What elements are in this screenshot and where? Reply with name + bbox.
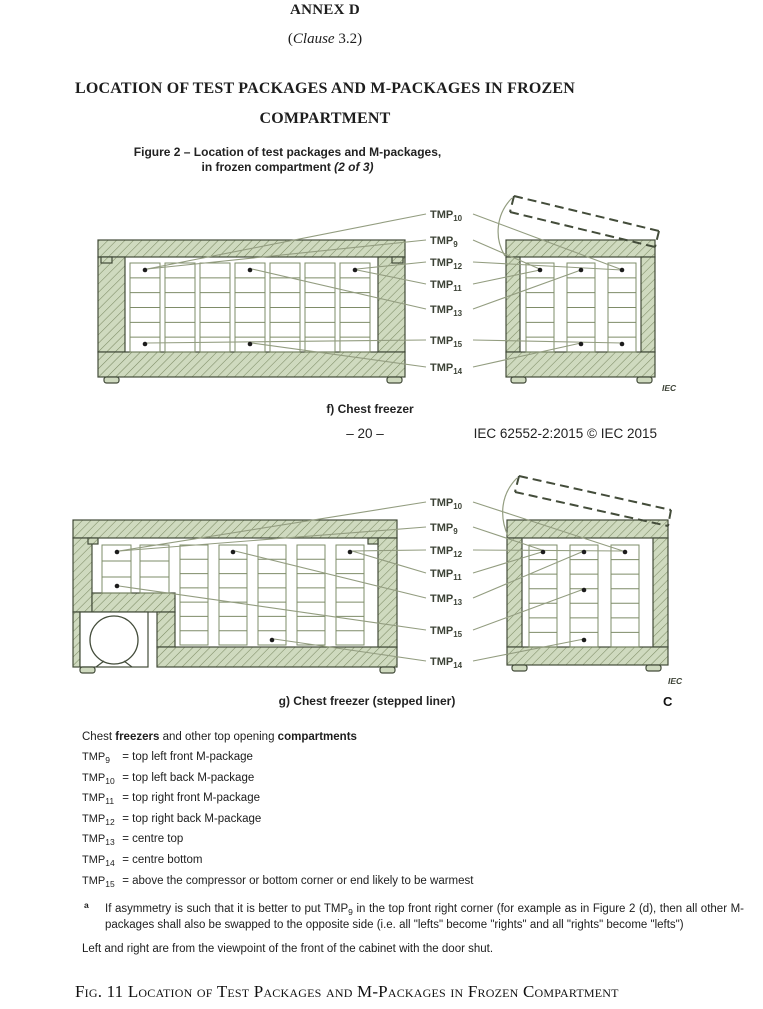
tmp-legend: Chest freezers and other top opening com… [82,731,744,955]
figure-11-caption: Fig. 11 Location of Test Packages and M-… [75,982,735,1002]
tmp-label-12: TMP12 [430,545,463,559]
legend-item-tmp-13: TMP13= centre top [82,833,744,854]
clause-word: Clause [293,31,335,47]
tmp-description: = centre bottom [122,854,202,866]
legend-heading: Chest freezers and other top opening com… [82,731,744,743]
tmp-subscript: 9 [105,755,120,765]
tmp-description: = top right front M-package [122,792,260,804]
tmp-label-9: TMP9 [430,235,458,249]
subfigure-f-caption: f) Chest freezer [240,402,500,416]
tmp-label-9: TMP9 [430,522,458,536]
legend-heading-part: Chest [82,731,115,743]
tmp-label-15: TMP15 [430,625,463,639]
tmp-description: = above the compressor or bottom corner … [122,875,473,887]
legend-item-tmp-11: TMP11= top right front M-package [82,792,744,813]
tmp-label-12: TMP12 [430,257,463,271]
clause-suffix: 3.2) [335,31,363,47]
page-title-line2: COMPARTMENT [0,104,650,134]
iec-mark: IEC [668,676,683,686]
legend-item-tmp-14: TMP14= centre bottom [82,854,744,875]
figure2-caption: Figure 2 – Location of test packages and… [60,145,515,175]
page-number: – 20 – [320,426,410,441]
figure2-caption-line2-italic: (2 of 3) [334,160,373,174]
legend-item-tmp-9: TMP9= top left front M-package [82,751,744,772]
document-reference: IEC 62552-2:2015 © IEC 2015 [474,426,657,441]
footnote-tmp-subscript: 9 [348,907,353,917]
figure2-caption-line2: in frozen compartment (2 of 3) [60,160,515,175]
compressor-icon [90,616,138,664]
legend-items: TMP9= top left front M-packageTMP10= top… [82,751,744,895]
tmp-name: TMP [82,792,105,804]
tmp-description: = centre top [122,833,183,845]
tmp-subscript: 12 [105,817,120,827]
tmp-subscript: 13 [105,837,120,847]
footnote-text: If asymmetry is such that it is better t… [105,902,744,933]
tmp-label-10: TMP10 [430,209,463,223]
viewpoint-note: Left and right are from the viewpoint of… [82,943,744,955]
tmp-subscript: 14 [105,858,120,868]
iec-mark: IEC [662,383,677,393]
test-package-grid [102,545,639,647]
tmp-subscript: 11 [105,796,120,806]
cabinet-feet [104,377,652,383]
tmp-description: = top left front M-package [122,751,253,763]
tmp-name: TMP [82,875,105,887]
tmp-name: TMP [82,833,105,845]
tmp-label-13: TMP13 [430,304,463,318]
tmp-label-13: TMP13 [430,593,463,607]
legend-heading-part: freezers [115,731,159,743]
footnote-marker: a [84,900,89,910]
tmp-label-14: TMP14 [430,656,463,670]
annex-heading: ANNEX D [0,2,650,19]
legend-item-tmp-15: TMP15= above the compressor or bottom co… [82,875,744,896]
cabinet-walls [98,240,655,377]
chest-freezer-stepped-liner-diagram: TMP10TMP9TMP12TMP11TMP13TMP15TMP14IEC [0,460,763,695]
clause-reference: (Clause 3.2) [0,31,650,48]
legend-item-tmp-12: TMP12= top right back M-package [82,813,744,834]
tmp-labels: TMP10TMP9TMP12TMP11TMP13TMP15TMP14 [430,209,463,376]
open-lid-dashed [510,196,659,247]
page-title-line1: LOCATION OF TEST PACKAGES AND M-PACKAGES… [0,74,650,104]
legend-heading-part: and other top opening [159,731,277,743]
running-header: – 20 – IEC 62552-2:2015 © IEC 2015 [0,426,763,444]
open-lid-dashed [515,476,671,526]
legend-heading-part: compartments [278,731,357,743]
tmp-label-14: TMP14 [430,362,463,376]
tmp-label-10: TMP10 [430,497,463,511]
tmp-label-11: TMP11 [430,568,462,582]
tmp-name: TMP [82,854,105,866]
tmp-name: TMP [82,813,105,825]
tmp-subscript: 15 [105,879,120,889]
figure2-caption-line2-text: in frozen compartment [201,160,334,174]
tmp-description: = top right back M-package [122,813,261,825]
tmp-label-11: TMP11 [430,279,462,293]
chest-freezer-diagram: TMP10TMP9TMP12TMP11TMP13TMP15TMP14IEC [0,190,763,405]
document-page: ANNEX D (Clause 3.2) LOCATION OF TEST PA… [0,0,763,1009]
tmp-description: = top left back M-package [122,772,254,784]
subfigure-g-caption: g) Chest freezer (stepped liner) [237,694,497,708]
legend-footnote: a If asymmetry is such that it is better… [82,902,744,933]
tmp-name: TMP [82,772,105,784]
page-title: LOCATION OF TEST PACKAGES AND M-PACKAGES… [0,74,650,134]
figure2-caption-line1: Figure 2 – Location of test packages and… [60,145,515,160]
tmp-labels: TMP10TMP9TMP12TMP11TMP13TMP15TMP14 [430,497,463,670]
tmp-subscript: 10 [105,776,120,786]
tmp-name: TMP [82,751,105,763]
margin-letter-c: C [663,694,672,709]
legend-item-tmp-10: TMP10= top left back M-package [82,772,744,793]
tmp-label-15: TMP15 [430,335,463,349]
